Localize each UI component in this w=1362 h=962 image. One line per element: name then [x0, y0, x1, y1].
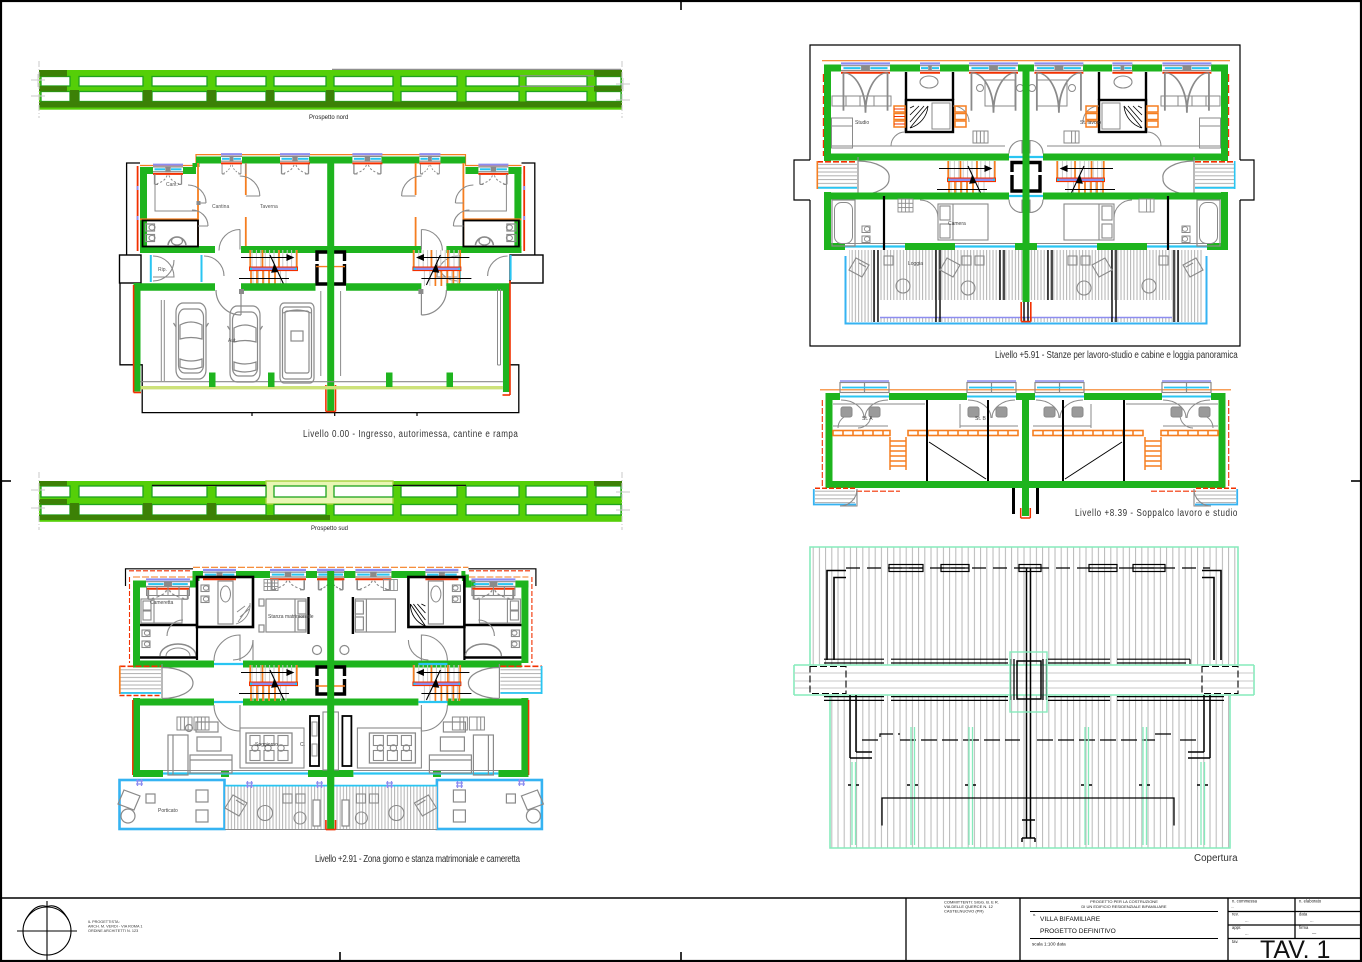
svg-text:Soggiorno: Soggiorno — [255, 742, 278, 748]
svg-text:...: ... — [1245, 918, 1249, 923]
svg-text:scala 1:100 data: scala 1:100 data — [1032, 942, 1066, 947]
svg-text:C.: C. — [300, 742, 305, 748]
svg-text:Stanza matrimoniale: Stanza matrimoniale — [268, 614, 314, 620]
svg-text:tav.: tav. — [1232, 939, 1238, 944]
svg-text:Aut.: Aut. — [228, 338, 237, 344]
svg-text:Prospetto nord: Prospetto nord — [309, 115, 348, 121]
svg-text:Copertura: Copertura — [1194, 853, 1238, 864]
svg-text:n.: n. — [1033, 912, 1036, 917]
svg-text:...: ... — [1245, 931, 1249, 936]
svg-text:Cant.: Cant. — [166, 182, 178, 188]
svg-text:Prospetto sud: Prospetto sud — [311, 526, 348, 532]
svg-text:CASTELNUOVO (PR): CASTELNUOVO (PR) — [944, 909, 984, 914]
svg-text:Cantina: Cantina — [212, 204, 229, 210]
svg-text:St. A: St. A — [862, 416, 873, 422]
svg-text:data: data — [1299, 912, 1308, 917]
svg-text:Loggia: Loggia — [908, 261, 923, 267]
svg-text:n. commessa: n. commessa — [1232, 899, 1258, 904]
svg-text:Cameretta: Cameretta — [150, 600, 174, 606]
svg-text:Camera: Camera — [948, 221, 966, 227]
svg-text:TAV. 1: TAV. 1 — [1260, 936, 1330, 962]
svg-text:Porticato: Porticato — [158, 808, 178, 814]
svg-text:St. B: St. B — [975, 416, 987, 422]
svg-text:IL PROGETTISTA:: IL PROGETTISTA: — [88, 920, 120, 924]
svg-text:Rip.: Rip. — [158, 267, 167, 273]
svg-text:Livello +5.91 - Stanze per lav: Livello +5.91 - Stanze per lavoro-studio… — [995, 349, 1238, 360]
svg-text:Taverna: Taverna — [260, 204, 278, 210]
svg-text:Livello 0.00 - Ingresso, autor: Livello 0.00 - Ingresso, autorimessa, ca… — [303, 428, 518, 439]
svg-text:n. elaborato: n. elaborato — [1299, 899, 1322, 904]
svg-text:Livello +2.91 - Zona giorno e: Livello +2.91 - Zona giorno e stanza mat… — [315, 853, 520, 864]
svg-text:rev.: rev. — [1232, 912, 1239, 917]
svg-text:...: ... — [1231, 905, 1234, 909]
svg-text:Livello +8.39 - Soppalco lavor: Livello +8.39 - Soppalco lavoro e studio — [1075, 507, 1237, 518]
svg-text:appr.: appr. — [1232, 925, 1241, 930]
svg-text:Studio: Studio — [855, 120, 869, 126]
svg-text:VILLA BIFAMILIARE: VILLA BIFAMILIARE — [1040, 916, 1101, 923]
svg-text:ORDINE ARCHITETTI N. 123: ORDINE ARCHITETTI N. 123 — [88, 929, 138, 933]
svg-text:ARCH. M. VERDI - VIA ROMA 1: ARCH. M. VERDI - VIA ROMA 1 — [88, 925, 142, 929]
svg-text:DI UN EDIFICIO RESIDENZIALE BI: DI UN EDIFICIO RESIDENZIALE BIFAMILIARE — [1081, 904, 1166, 909]
svg-text:firma: firma — [1299, 925, 1309, 930]
svg-text:PROGETTO DEFINITIVO: PROGETTO DEFINITIVO — [1040, 928, 1116, 935]
svg-text:St. lavoro: St. lavoro — [1080, 120, 1101, 126]
svg-text:...: ... — [1310, 918, 1314, 923]
